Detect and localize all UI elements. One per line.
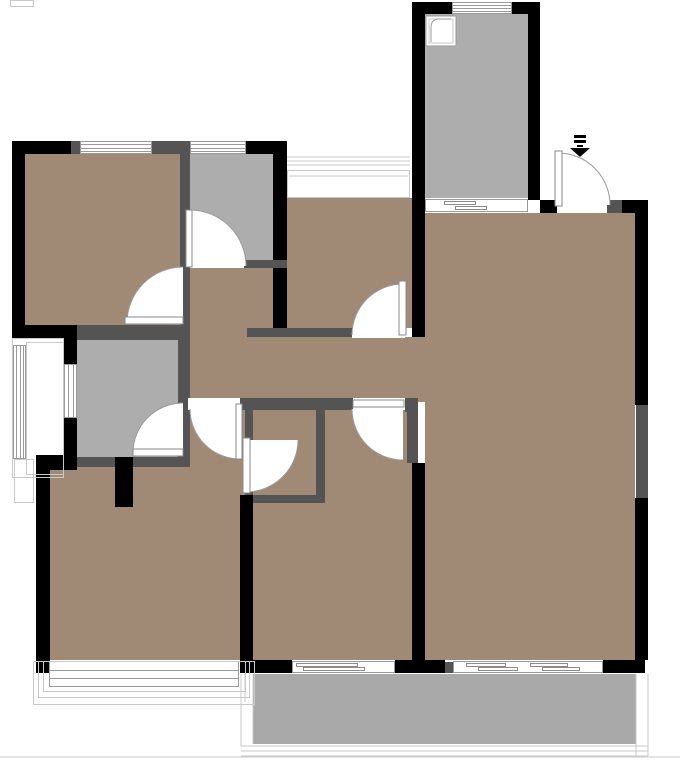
- wall-segment: [528, 2, 540, 200]
- wall-segment: [540, 200, 557, 213]
- entry-arrow-icon: [570, 148, 590, 157]
- room-passage-gap: [412, 337, 425, 402]
- sliding-door-kitchen-mark: [455, 206, 487, 210]
- wall-segment: [36, 470, 50, 673]
- wall-segment: [77, 457, 190, 467]
- wall-segment: [12, 325, 77, 338]
- wall-segment: [240, 495, 253, 673]
- door-entrance-fill: [558, 153, 610, 205]
- wall-segment: [273, 141, 287, 337]
- window-bathroom-line: [68, 365, 69, 417]
- wall-segment: [445, 662, 453, 673]
- wall-segment: [635, 213, 648, 405]
- window-top-1-line: [81, 148, 151, 149]
- wall-segment: [636, 405, 648, 498]
- sliding-window-right-mark: [542, 667, 580, 671]
- wall-segment: [244, 260, 287, 268]
- door-opening: [188, 398, 240, 410]
- window-kitchen-line: [453, 8, 511, 9]
- wall-segment: [180, 154, 190, 266]
- wall-segment: [245, 410, 253, 440]
- window-top-2-line: [191, 144, 245, 145]
- wall-segment: [407, 402, 418, 463]
- terrace-outline: [33, 661, 255, 705]
- wall-segment: [412, 2, 452, 14]
- terrace-outline: [287, 170, 410, 198]
- floor-plan: [0, 0, 680, 763]
- sliding-window-left-mark: [303, 667, 365, 671]
- door-opening: [353, 398, 405, 410]
- room-study-room: [287, 198, 412, 328]
- wall-segment: [247, 328, 352, 337]
- room-bedroom-bottom-middle: [253, 398, 412, 660]
- wall-segment: [12, 141, 71, 154]
- wall-segment: [412, 463, 425, 660]
- window-bathroom: [64, 364, 77, 418]
- entry-arrow-icon: [574, 140, 586, 143]
- door-entrance-leaf: [555, 151, 562, 206]
- door-opening: [352, 328, 405, 338]
- terrace-outline: [14, 459, 34, 503]
- entry-arrow-icon: [577, 145, 583, 147]
- room-storage-room: [190, 154, 273, 260]
- wall-segment: [77, 330, 178, 340]
- window-top-2-line: [191, 148, 245, 149]
- wall-segment: [115, 457, 133, 507]
- room-bathroom: [77, 340, 178, 457]
- sliding-window-right-mark: [478, 667, 518, 671]
- room-living-room: [425, 213, 635, 660]
- wall-segment: [603, 660, 645, 673]
- window-top-1-line: [81, 144, 151, 145]
- wall-segment: [64, 338, 77, 364]
- room-bedroom-top-left: [25, 154, 180, 325]
- wall-segment: [412, 2, 425, 337]
- window-top-1-line: [81, 151, 151, 152]
- wall-segment: [180, 266, 190, 330]
- window-kitchen-line: [453, 5, 511, 6]
- room-hall-alcove: [188, 268, 273, 337]
- wall-segment: [607, 200, 622, 213]
- sliding-door-kitchen-mark: [444, 201, 476, 205]
- entry-arrow-icon: [574, 135, 586, 138]
- window-bathroom-line: [73, 365, 74, 417]
- room-hallway: [188, 337, 412, 398]
- window-top-2-line: [191, 151, 245, 152]
- wall-segment: [395, 660, 445, 673]
- terrace-outline: [10, 0, 34, 7]
- door-entrance-arc: [558, 153, 610, 205]
- window-kitchen-line: [453, 11, 511, 12]
- wall-segment: [152, 141, 190, 154]
- room-kitchen: [425, 14, 528, 198]
- wall-segment: [622, 200, 648, 213]
- wall-segment: [635, 498, 648, 660]
- wall-segment: [245, 495, 325, 503]
- wall-segment: [12, 141, 25, 338]
- door-opening: [557, 200, 607, 213]
- wall-segment: [240, 398, 353, 410]
- wall-segment: [71, 141, 80, 154]
- room-balcony-bottom: [253, 674, 636, 744]
- wall-segment: [316, 398, 325, 503]
- room-bedroom-bottom-left: [50, 467, 240, 660]
- terrace-outline: [26, 342, 64, 475]
